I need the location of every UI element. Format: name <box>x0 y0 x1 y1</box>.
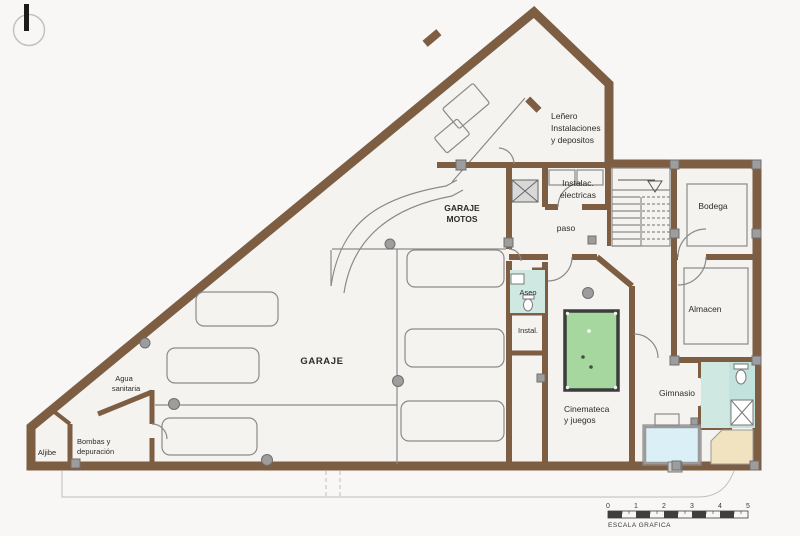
massage-table-icon <box>645 427 699 463</box>
column <box>140 338 150 348</box>
column <box>752 229 761 238</box>
column <box>752 356 761 365</box>
column <box>672 461 681 470</box>
column <box>670 160 679 169</box>
scale-tick-label: 1 <box>634 503 638 510</box>
column <box>670 356 679 365</box>
driveway-outline <box>62 471 734 497</box>
room-label-bombas: depuración <box>77 447 114 456</box>
column <box>385 239 395 249</box>
room-label-instalac-electricas: Instalac. <box>562 178 594 188</box>
room-label-aseo: Aseo <box>519 288 536 297</box>
pool-table <box>565 311 618 390</box>
room-label-agua-sanitaria: Agua <box>115 374 133 383</box>
room-label-almacen: Almacen <box>688 304 721 314</box>
north-arrow-icon <box>14 4 45 46</box>
room-label-garaje: GARAJE <box>300 356 343 367</box>
room-label-lenero: Instalaciones <box>551 123 601 133</box>
column <box>691 418 698 425</box>
column <box>393 376 404 387</box>
column <box>750 461 759 470</box>
toilet-icon <box>524 299 533 311</box>
column <box>583 288 594 299</box>
room-label-lenero: y depositos <box>551 135 594 145</box>
sink-icon <box>511 274 524 284</box>
column <box>169 399 180 410</box>
room-label-gimnasio: Gimnasio <box>659 388 695 398</box>
room-label-lenero: Leñero <box>551 111 578 121</box>
column <box>670 229 679 238</box>
column <box>456 160 466 170</box>
scale-tick-label: 0 <box>606 503 610 510</box>
column <box>752 160 761 169</box>
column <box>504 238 513 247</box>
scale-tick-label: 4 <box>718 503 722 510</box>
scale-tick-label: 5 <box>746 503 750 510</box>
toilet-icon <box>736 370 746 384</box>
room-label-agua-sanitaria: sanitaria <box>112 384 141 393</box>
room-label-bodega: Bodega <box>698 201 728 211</box>
room-label-instal: Instal. <box>518 326 538 335</box>
room-label-cinemateca: y juegos <box>564 415 596 425</box>
sauna-bench <box>711 430 753 464</box>
room-label-paso: paso <box>557 223 576 233</box>
floor-plan-drawing: Leñero Instalaciones y depositos GARAJE … <box>0 0 800 536</box>
scale-tick-label: 2 <box>662 503 666 510</box>
scale-tick-label: 3 <box>690 503 694 510</box>
room-label-bombas: Bombas y <box>77 437 111 446</box>
room-label-garaje-motos: MOTOS <box>446 214 477 224</box>
column <box>71 459 80 468</box>
column <box>262 455 273 466</box>
room-label-aljibe: Aljibe <box>38 448 56 457</box>
column <box>588 236 596 244</box>
gym-bathroom <box>701 362 755 428</box>
scale-bar: 0 1 2 3 4 5 ESCALA GRAFICA <box>606 503 750 529</box>
room-label-cinemateca: Cinemateca <box>564 404 610 414</box>
room-label-instalac-electricas: electricas <box>560 190 596 200</box>
scale-caption: ESCALA GRAFICA <box>608 522 671 529</box>
column <box>537 374 545 382</box>
floor-plan-page: Leñero Instalaciones y depositos GARAJE … <box>0 0 800 536</box>
room-label-garaje-motos: GARAJE <box>444 203 480 213</box>
